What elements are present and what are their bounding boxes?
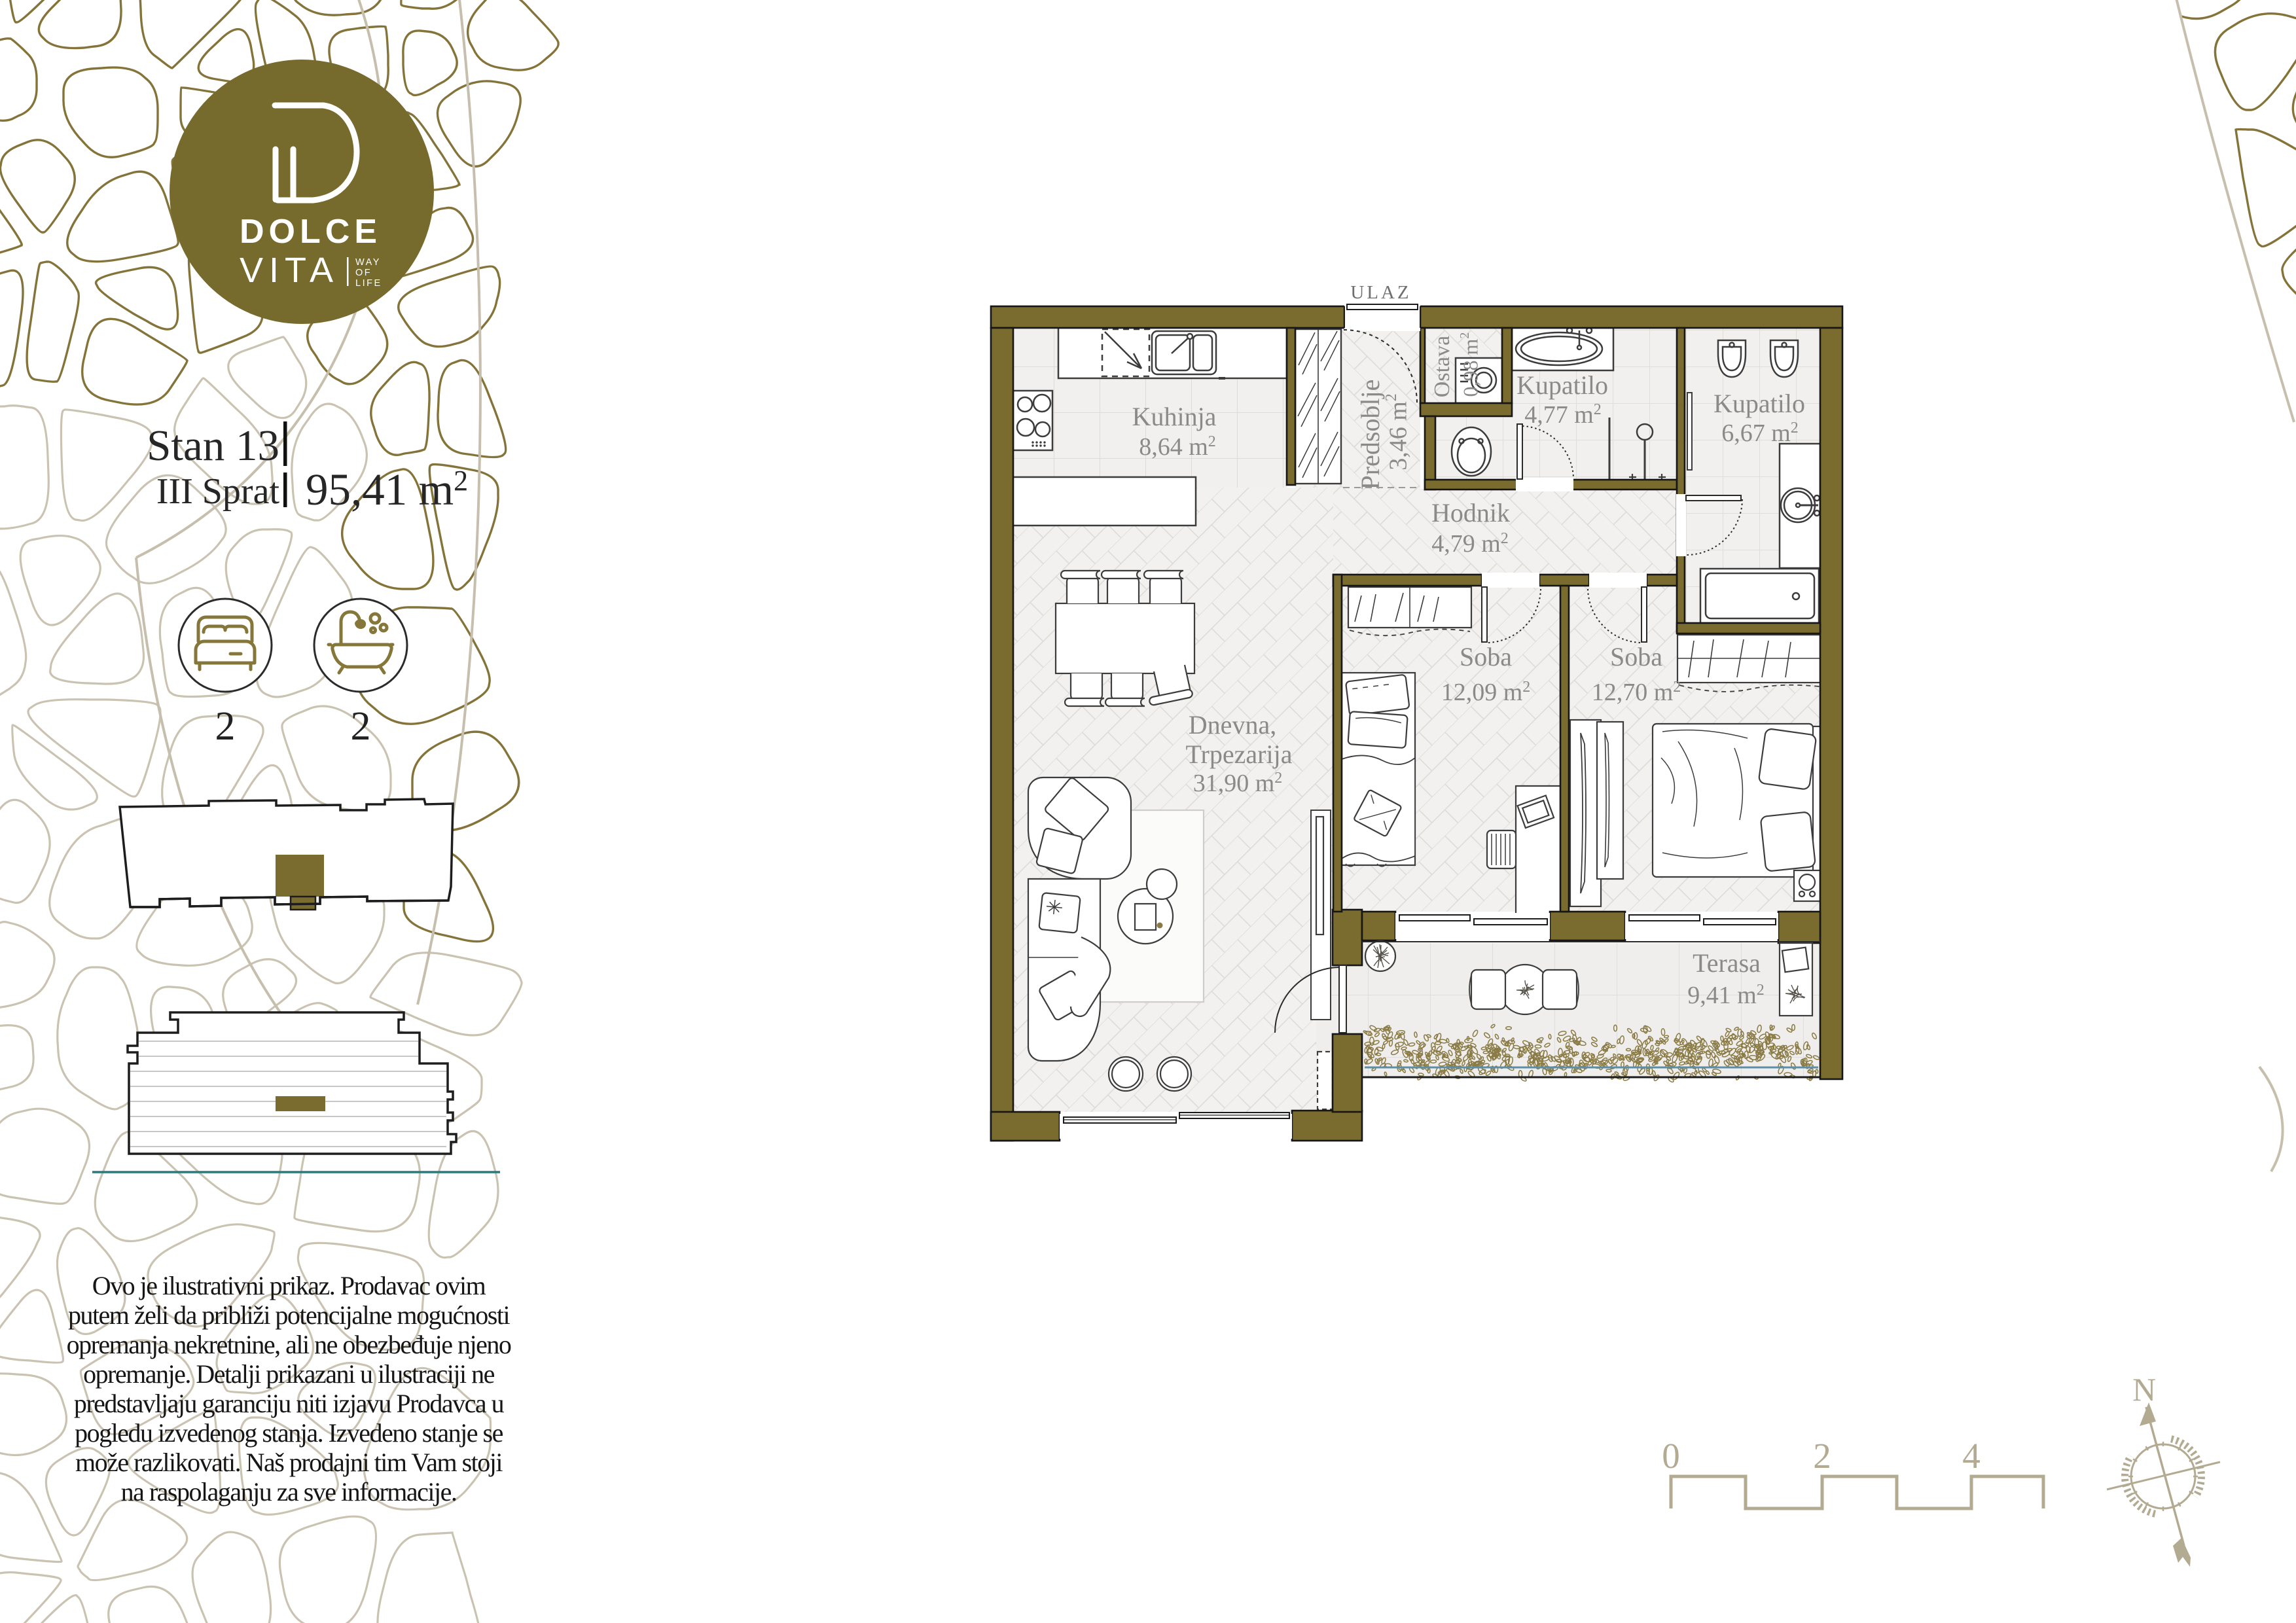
svg-text:2: 2 [1813, 1436, 1831, 1476]
svg-text:DOLCE: DOLCE [240, 213, 382, 251]
svg-text:Ostava: Ostava [1430, 336, 1454, 397]
svg-text:8,64 m2: 8,64 m2 [1139, 433, 1216, 461]
svg-text:WAY: WAY [355, 257, 381, 268]
svg-text:može razlikovati. Naš prodajni: može razlikovati. Naš prodajni tim Vam s… [75, 1448, 503, 1477]
svg-text:Hodnik: Hodnik [1431, 498, 1510, 527]
svg-text:4: 4 [1962, 1436, 1981, 1476]
svg-text:2: 2 [351, 704, 371, 749]
svg-text:Dnevna,: Dnevna, [1189, 710, 1276, 740]
svg-text:Soba: Soba [1610, 642, 1662, 671]
svg-text:4,79 m2: 4,79 m2 [1431, 530, 1509, 558]
svg-text:opremanje. Detalji prikazani u: opremanje. Detalji prikazani u ilustraci… [83, 1359, 495, 1389]
svg-text:0,98 m2: 0,98 m2 [1458, 332, 1482, 397]
svg-text:0: 0 [1662, 1436, 1680, 1476]
svg-text:31,90 m2: 31,90 m2 [1193, 770, 1283, 797]
svg-text:opremanja nekretnine, ali ne o: opremanja nekretnine, ali ne obezbeđuje … [67, 1330, 511, 1359]
svg-text:putem želi da približi potenci: putem želi da približi potencijalne mogu… [68, 1300, 511, 1330]
svg-text:Kupatilo: Kupatilo [1713, 389, 1805, 418]
svg-text:Stan 13: Stan 13 [147, 421, 279, 470]
svg-text:12,70 m2: 12,70 m2 [1592, 679, 1681, 706]
svg-text:Ovo je ilustrativni prikaz. Pr: Ovo je ilustrativni prikaz. Prodavac ovi… [92, 1271, 486, 1300]
svg-text:6,67 m2: 6,67 m2 [1721, 419, 1799, 447]
svg-text:Predsoblje: Predsoblje [1355, 380, 1385, 490]
svg-text:III Sprat: III Sprat [156, 471, 280, 512]
svg-text:12,09 m2: 12,09 m2 [1441, 679, 1531, 706]
svg-text:LIFE: LIFE [355, 278, 382, 289]
svg-text:pogledu izvedenog stanja. Izve: pogledu izvedenog stanja. Izvedeno stanj… [75, 1418, 503, 1448]
svg-text:Trpezarija: Trpezarija [1186, 740, 1293, 769]
svg-text:N: N [2132, 1371, 2156, 1408]
svg-text:4,77 m2: 4,77 m2 [1524, 401, 1602, 429]
svg-text:OF: OF [355, 268, 372, 278]
svg-text:2: 2 [215, 704, 236, 749]
svg-text:Terasa: Terasa [1693, 948, 1761, 978]
svg-text:95,41 m2: 95,41 m2 [306, 465, 468, 514]
svg-text:predstavljaju garanciju niti i: predstavljaju garanciju niti izjavu Prod… [74, 1389, 505, 1418]
svg-text:9,41 m2: 9,41 m2 [1687, 982, 1765, 1009]
svg-text:VITA: VITA [240, 251, 339, 290]
svg-text:3,46 m2: 3,46 m2 [1383, 393, 1412, 471]
svg-text:Kuhinja: Kuhinja [1132, 402, 1217, 431]
svg-text:na raspolaganju za sve informa: na raspolaganju za sve informacije. [121, 1477, 457, 1507]
svg-text:Kupatilo: Kupatilo [1516, 370, 1608, 400]
svg-text:Soba: Soba [1460, 642, 1512, 671]
svg-text:ULAZ: ULAZ [1350, 282, 1411, 303]
